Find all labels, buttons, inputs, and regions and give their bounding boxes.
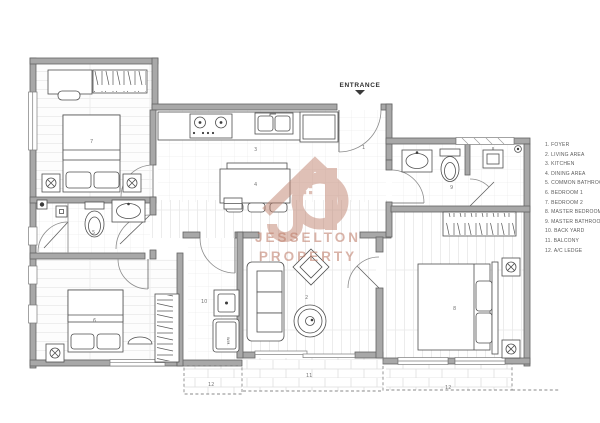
room-label-master-bedroom: 8 xyxy=(453,306,456,312)
master-wardrobe xyxy=(443,212,516,236)
floor-plan-page: 1 2 3 4 5 6 7 8 9 10 11 12 12 W.M. ENTRA… xyxy=(0,0,600,423)
room-label-ac-ledge-left: 12 xyxy=(208,382,214,388)
room-label-living: 2 xyxy=(305,295,308,301)
room-label-master-bath: 9 xyxy=(450,185,453,191)
legend-item: 6. BEDROOM 1 xyxy=(545,189,600,199)
legend-item: 3. KITCHEN xyxy=(545,160,600,170)
room-label-bedroom2: 7 xyxy=(90,139,93,145)
watermark-line1: JESSELTON xyxy=(248,228,368,247)
watermark-text: JESSELTON PROPERTY xyxy=(248,228,368,266)
legend: 1. FOYER 2. LIVING AREA 3. KITCHEN 4. DI… xyxy=(545,141,600,256)
legend-item: 4. DINING AREA xyxy=(545,170,600,180)
legend-item: 12. A/C LEDGE xyxy=(545,247,600,257)
entrance-label: ENTRANCE xyxy=(330,82,390,89)
floor-plan-drawing: 1 2 3 4 5 6 7 8 9 10 11 12 12 W.M. xyxy=(0,0,600,423)
room-label-balcony: 11 xyxy=(306,373,312,379)
room-label-kitchen: 3 xyxy=(254,147,257,153)
legend-item: 2. LIVING AREA xyxy=(545,151,600,161)
entrance-arrow-icon xyxy=(355,90,365,95)
foyer-cabinet xyxy=(224,198,242,209)
legend-item: 9. MASTER BATHROOM xyxy=(545,218,600,228)
room-label-common-bath: 5 xyxy=(92,230,95,236)
room-label-bedroom1: 6 xyxy=(93,318,96,324)
entrance-label-block: ENTRANCE xyxy=(330,82,390,95)
legend-item: 5. COMMON BATHROOM xyxy=(545,179,600,189)
room-label-ac-ledge-right: 12 xyxy=(445,385,451,391)
watermark-line2: PROPERTY xyxy=(248,247,368,266)
legend-item: 10. BACK YARD xyxy=(545,227,600,237)
room-label-foyer: 1 xyxy=(362,145,365,151)
washing-machine-label: W.M. xyxy=(226,337,230,346)
room-label-dining: 4 xyxy=(254,182,257,188)
kitchen-fixtures xyxy=(158,112,338,142)
legend-item: 11. BALCONY xyxy=(545,237,600,247)
backyard-fixtures xyxy=(213,290,239,352)
room-label-back-yard: 10 xyxy=(201,299,207,305)
legend-item: 8. MASTER BEDROOM xyxy=(545,208,600,218)
legend-item: 7. BEDROOM 2 xyxy=(545,199,600,209)
legend-item: 1. FOYER xyxy=(545,141,600,151)
